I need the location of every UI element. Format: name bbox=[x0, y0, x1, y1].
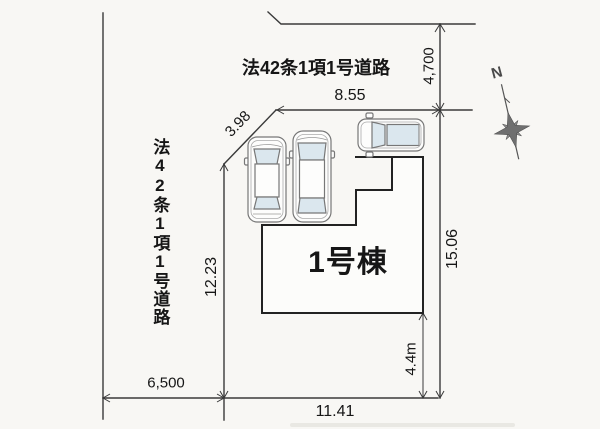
road-top-edge bbox=[268, 12, 475, 24]
car-windshield bbox=[372, 122, 385, 148]
car-top-view-middle bbox=[290, 131, 335, 222]
dim-road-left-width: 6,500 bbox=[147, 376, 185, 391]
car-windshield bbox=[254, 149, 280, 164]
dim-west-side: 12.23 bbox=[204, 257, 220, 297]
building-label: 1号棟 bbox=[308, 248, 388, 278]
dim-top-frontage: 8.55 bbox=[334, 88, 365, 104]
dim-south-frontage: 11.41 bbox=[316, 404, 355, 420]
car-roof bbox=[300, 160, 325, 198]
dim-road-top-width: 4,700 bbox=[422, 47, 437, 85]
car-mirror bbox=[366, 152, 373, 157]
car-top-view-upper bbox=[358, 113, 424, 157]
road-label-top: 法42条1項1号道路 bbox=[242, 59, 390, 77]
compass-star-cardinal bbox=[490, 108, 533, 151]
car-roof bbox=[255, 164, 279, 197]
site-plan: 法42条1項1号道路 法42条1項1号道路 8.55 4,700 3.98 12… bbox=[0, 0, 600, 429]
dim-east-side: 15.06 bbox=[445, 229, 461, 269]
road-label-left: 法42条1項1号道路 bbox=[151, 138, 168, 326]
compass-rose bbox=[484, 80, 536, 163]
car-windshield bbox=[298, 143, 326, 160]
car-rear-window bbox=[298, 198, 326, 213]
car-cabin-glass bbox=[387, 125, 419, 146]
car-top-view-left bbox=[245, 137, 290, 222]
scan-artifact bbox=[290, 423, 515, 427]
dim-south-setback: 4.4m bbox=[404, 342, 419, 375]
car-mirror bbox=[366, 113, 373, 118]
car-rear-window bbox=[254, 197, 280, 209]
